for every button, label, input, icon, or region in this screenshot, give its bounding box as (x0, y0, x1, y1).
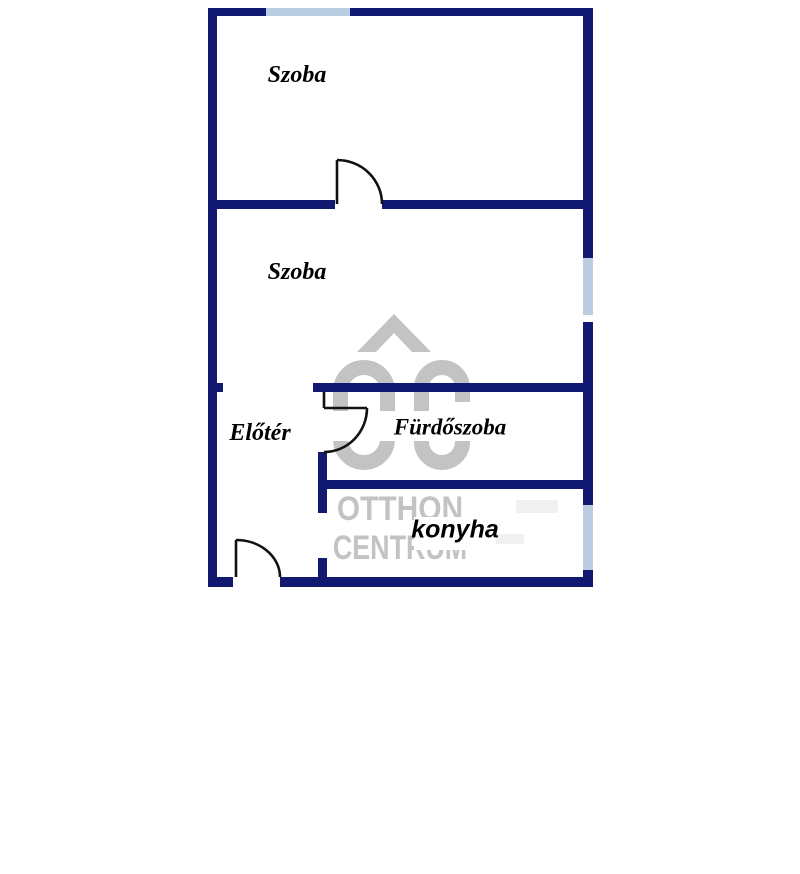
wall-room-divider-left (208, 200, 335, 209)
wall-hall-divider-main (313, 383, 583, 392)
room-label-szoba-2: Szoba (268, 260, 327, 284)
room-label-eloter: Előtér (229, 421, 290, 445)
wall-hall-vertical-lower (318, 558, 327, 587)
wall-top-right-segment (350, 8, 593, 16)
scan-artifact-smudge (496, 534, 524, 544)
window-top (266, 8, 350, 16)
wall-hall-divider-stub (208, 383, 223, 392)
window-right-lower (583, 505, 593, 570)
wall-left (208, 8, 217, 587)
wall-right-middle-segment (583, 322, 593, 505)
scan-artifact-smudge (516, 500, 558, 513)
room-label-konyha: konyha (411, 518, 499, 543)
wall-hall-vertical-upper (318, 452, 327, 513)
room-label-szoba-1: Szoba (268, 63, 327, 87)
room-label-furdoszoba: Fürdőszoba (394, 416, 506, 439)
window-right-upper (583, 258, 593, 315)
wall-room-divider-right (382, 200, 583, 209)
wall-bottom-left-segment (208, 577, 233, 587)
floorplan-canvas: OTTHON CENTRUM (0, 0, 800, 874)
wall-bath-kitchen-divider (327, 480, 583, 489)
wall-right-upper-segment (583, 8, 593, 258)
